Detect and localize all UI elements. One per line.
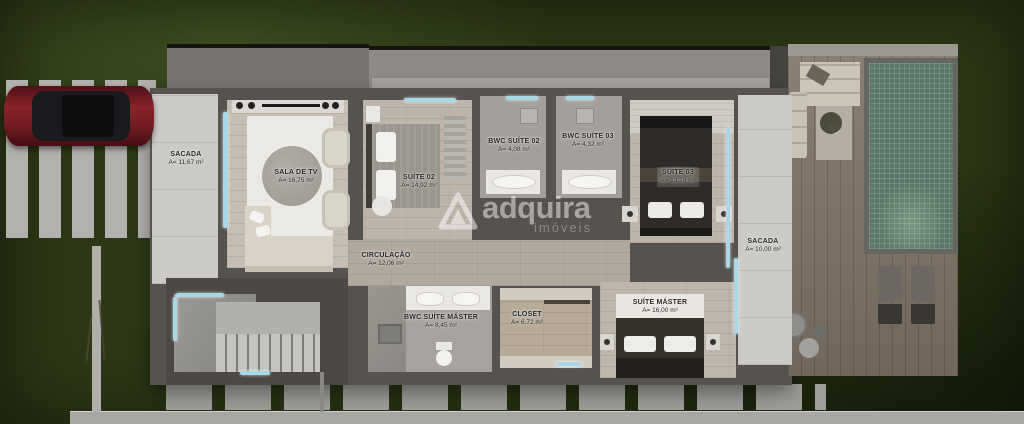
room-area: A= 16,00 m² [633,307,688,315]
swimming-pool [864,58,958,254]
lounger-cushion [911,266,935,302]
room-label-suite02: SUÍTE 02 A= 14,92 m² [401,173,437,191]
triangle-logo-icon [438,192,478,230]
column-post [320,372,324,412]
room-label-balcony-right: SACADA A= 10,00 m² [745,237,781,255]
garden-path [92,246,101,412]
window-bwc03-north [566,96,594,100]
pouf [372,196,392,216]
red-car [4,84,154,148]
armchair [322,128,350,168]
room-name: SALA DE TV [274,168,317,177]
table-lamp [604,339,610,345]
room-label-bwc02: BWC SUÍTE 02 A= 4,08 m² [488,137,539,155]
console-decor [332,102,339,109]
outdoor-rug [816,106,852,160]
room-label-closet: CLOSET A= 6,72 m² [511,310,543,328]
sun-lounger [878,266,902,324]
room-label-balcony-left: SACADA A= 11,67 m² [168,150,203,168]
room-name: CLOSET [511,310,543,319]
balcony-left-floor [152,94,218,284]
room-name: BWC SUÍTE 02 [488,137,539,146]
room-area: A= 10,00 m² [745,246,781,254]
room-name: BWC SUÍTE MÁSTER [404,313,478,322]
nightstand [706,334,720,350]
lounger-seat [911,304,935,324]
room-label-suite03: SUÍTE 03 A= 13,28 m² [657,167,699,187]
staircase [216,334,320,372]
walkway-pavers [166,384,826,410]
room-name: SUÍTE MÁSTER [633,298,688,307]
lounger-cushion [878,266,902,302]
room-area: A= 11,67 m² [168,159,203,167]
bwc-master-vanity [406,286,490,310]
shower-drain [378,324,402,344]
toilet-bowl [436,350,452,366]
room-label-bwc-master: BWC SUÍTE MÁSTER A= 8,45 m² [404,313,478,331]
window-bwc02-north [506,96,538,100]
bed-pillow [624,336,656,352]
bed-throw [616,358,704,378]
bed-pillow [648,202,672,218]
window-suite02-north [404,98,456,102]
suite-master-bed [616,318,704,378]
toilet [436,342,452,368]
balcony-right-floor [738,95,792,365]
entry-rail-vertical [173,297,177,341]
room-label-suite-master: SUÍTE MÁSTER A= 16,00 m² [633,298,688,316]
sun-lounger [911,266,935,324]
small-pot [813,324,827,338]
round-side-table [799,338,819,358]
room-label-tv-room: SALA DE TV A= 16,75 m² [274,168,317,186]
bed-pillow [680,202,704,218]
room-name: BWC SUÍTE 03 [562,132,613,141]
sink-basin [492,175,536,189]
console-decor [322,102,329,109]
bed-headboard [640,116,712,128]
closet-rod [544,300,590,304]
bench-pillow [806,64,830,86]
suite02-bed [366,124,440,208]
room-name: SACADA [168,150,203,159]
bwc03-niche [576,108,594,124]
toilet-tank [436,342,452,350]
closet-shelf-top [500,288,592,300]
striped-runner-rug [444,116,466,180]
sofa [245,236,333,272]
lounger-seat [878,304,902,324]
sink-basin [416,292,444,306]
table-lamp [627,211,633,217]
room-area: A= 13,28 m² [660,177,696,185]
table-lamp [710,339,716,345]
console-decor [236,102,243,109]
stair-landing [216,302,320,334]
room-label-bwc03: BWC SUÍTE 03 A= 4,32 m² [562,132,613,150]
room-name: SUÍTE 03 [660,168,696,177]
console-decor [248,102,255,109]
watermark-subtitle: imóveis [534,220,592,235]
pool-deck [788,56,958,376]
room-name: SACADA [745,237,781,246]
room-area: A= 12,06 m² [361,260,410,268]
room-area: A= 8,45 m² [404,322,478,330]
room-name: SUÍTE 02 [401,173,437,182]
room-area: A= 4,08 m² [488,146,539,154]
window-tv-room-west [223,112,228,228]
nightstand [366,106,380,122]
outdoor-bench [800,62,860,106]
bed-pillow [664,336,696,352]
armchair [322,190,350,230]
tv-screen [262,104,320,107]
plant-foliage [820,112,842,134]
room-name: CIRCULAÇÃO [361,251,410,260]
room-area: A= 4,32 m² [562,141,613,149]
room-area: A= 6,72 m² [511,319,543,327]
sink-basin [568,175,612,189]
car-roof [62,95,114,137]
road-strip [70,411,1024,424]
nightstand [600,334,614,350]
sink-basin [452,292,480,306]
bed-frame-foot [640,228,712,236]
watermark-logo-icon [438,192,478,235]
window-suite-master-east [734,258,738,334]
window-stair-south [240,371,270,375]
bed-pillow [376,132,396,162]
nightstand [622,206,638,222]
room-label-hallway: CIRCULAÇÃO A= 12,06 m² [361,251,410,269]
room-area: A= 16,75 m² [274,177,317,185]
window-closet-south [556,362,582,366]
floor-plan-render: SACADA A= 11,67 m² SALA DE TV A= 16,75 m… [0,0,1024,424]
window-suite03-east [726,128,730,268]
bwc02-niche [520,108,538,124]
entry-rail-horizontal [176,293,224,297]
room-area: A= 14,92 m² [401,182,437,190]
